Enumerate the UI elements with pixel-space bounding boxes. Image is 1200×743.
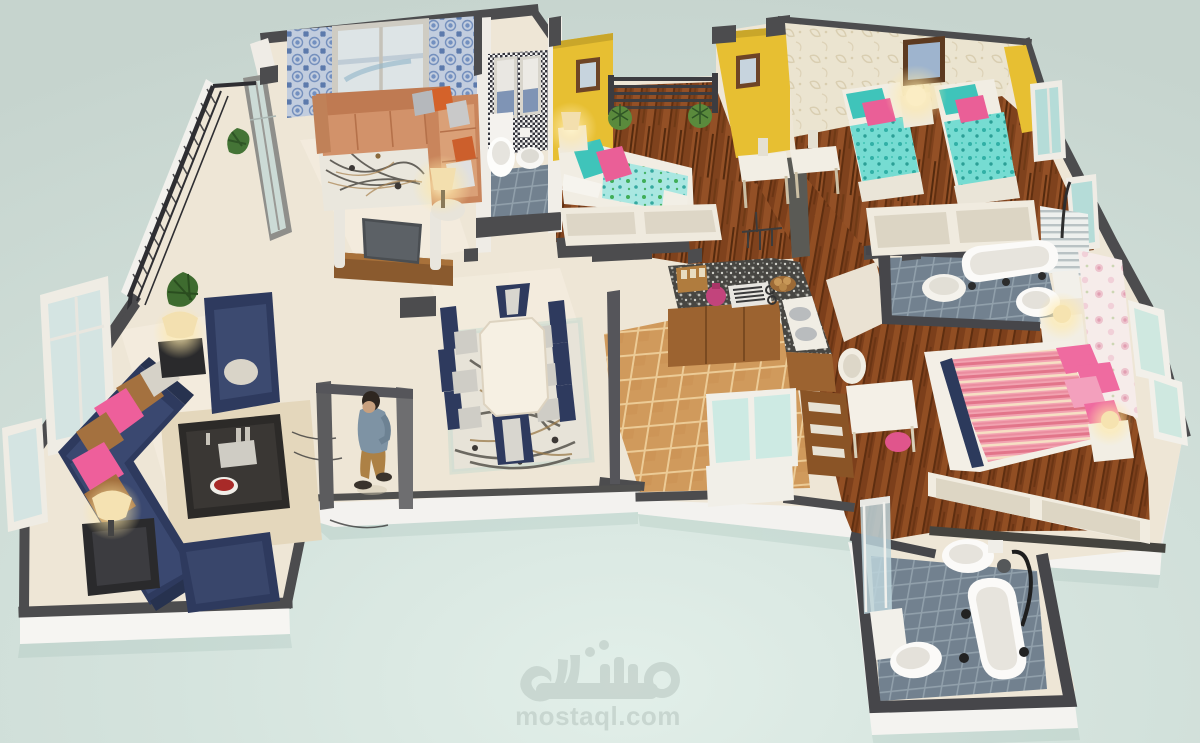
svg-text:mostaql.com: mostaql.com	[515, 701, 681, 731]
